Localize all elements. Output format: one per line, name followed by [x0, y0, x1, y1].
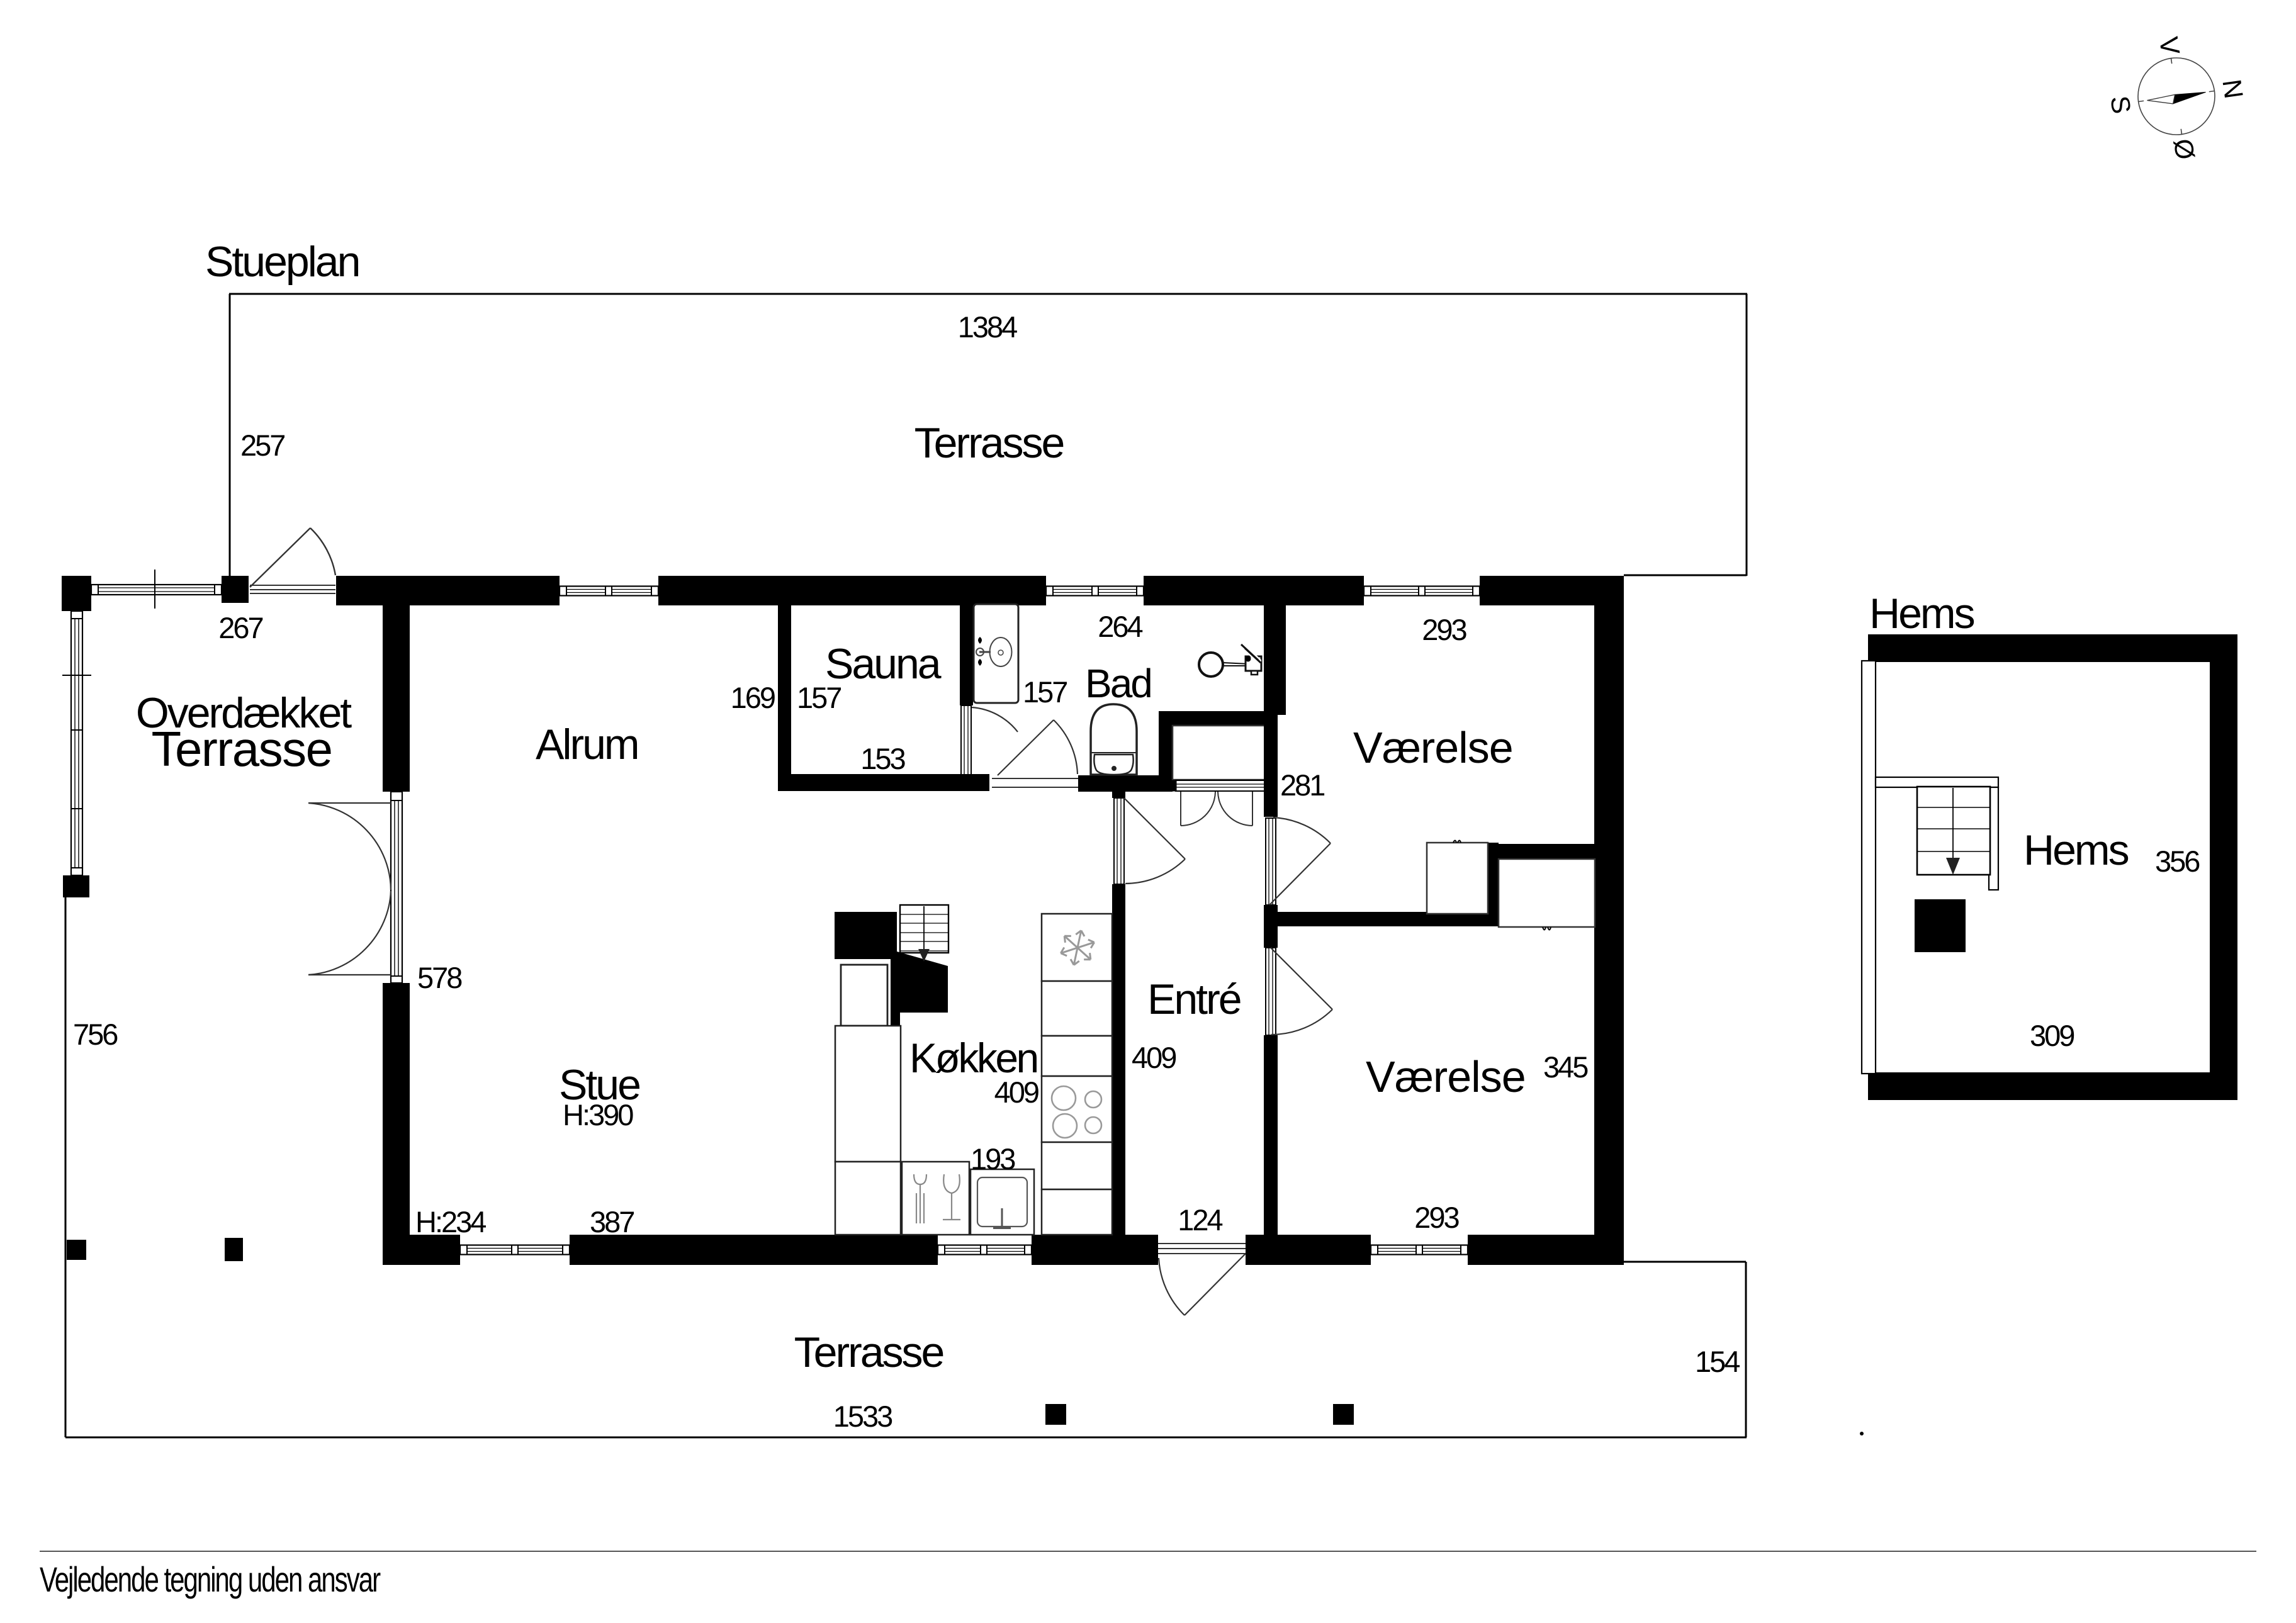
svg-text:124: 124	[1178, 1203, 1222, 1237]
svg-text:157: 157	[797, 681, 841, 714]
svg-text:293: 293	[1414, 1201, 1459, 1234]
svg-text:Terrasse: Terrasse	[794, 1328, 943, 1376]
svg-text:356: 356	[2155, 845, 2200, 878]
svg-text:345: 345	[1543, 1050, 1588, 1084]
svg-text:H:390: H:390	[563, 1098, 633, 1132]
svg-text:264: 264	[1098, 610, 1142, 643]
svg-text:153: 153	[860, 742, 905, 775]
svg-text:Terrasse: Terrasse	[914, 419, 1064, 467]
svg-text:Vejledende tegning uden ansvar: Vejledende tegning uden ansvar	[40, 1560, 381, 1599]
svg-text:409: 409	[1132, 1041, 1176, 1074]
svg-text:1384: 1384	[958, 310, 1017, 344]
svg-text:169: 169	[731, 681, 775, 714]
svg-text:387: 387	[590, 1205, 634, 1238]
svg-text:Hems: Hems	[2023, 826, 2129, 874]
svg-text:Værelse: Værelse	[1353, 723, 1513, 772]
svg-text:154: 154	[1695, 1345, 1740, 1378]
svg-text:Stueplan: Stueplan	[205, 238, 359, 286]
svg-text:Entré: Entré	[1147, 975, 1241, 1023]
svg-text:193: 193	[971, 1142, 1015, 1176]
svg-text:1533: 1533	[833, 1400, 892, 1433]
svg-text:257: 257	[240, 429, 284, 462]
svg-text:309: 309	[2030, 1019, 2074, 1052]
svg-text:267: 267	[218, 611, 262, 644]
svg-text:578: 578	[417, 961, 462, 994]
svg-text:756: 756	[73, 1018, 118, 1051]
svg-text:Værelse: Værelse	[1366, 1052, 1526, 1101]
svg-text:293: 293	[1422, 613, 1466, 646]
svg-text:Køkken: Køkken	[909, 1035, 1037, 1081]
svg-text:Sauna: Sauna	[825, 640, 942, 688]
svg-text:Terrasse: Terrasse	[151, 721, 332, 777]
svg-text:Bad: Bad	[1085, 661, 1151, 706]
svg-text:281: 281	[1280, 768, 1324, 802]
svg-text:Alrum: Alrum	[536, 721, 638, 768]
svg-text:409: 409	[994, 1075, 1038, 1109]
svg-text:Hems: Hems	[1869, 590, 1974, 637]
svg-text:157: 157	[1023, 675, 1067, 709]
svg-text:H:234: H:234	[415, 1205, 486, 1238]
